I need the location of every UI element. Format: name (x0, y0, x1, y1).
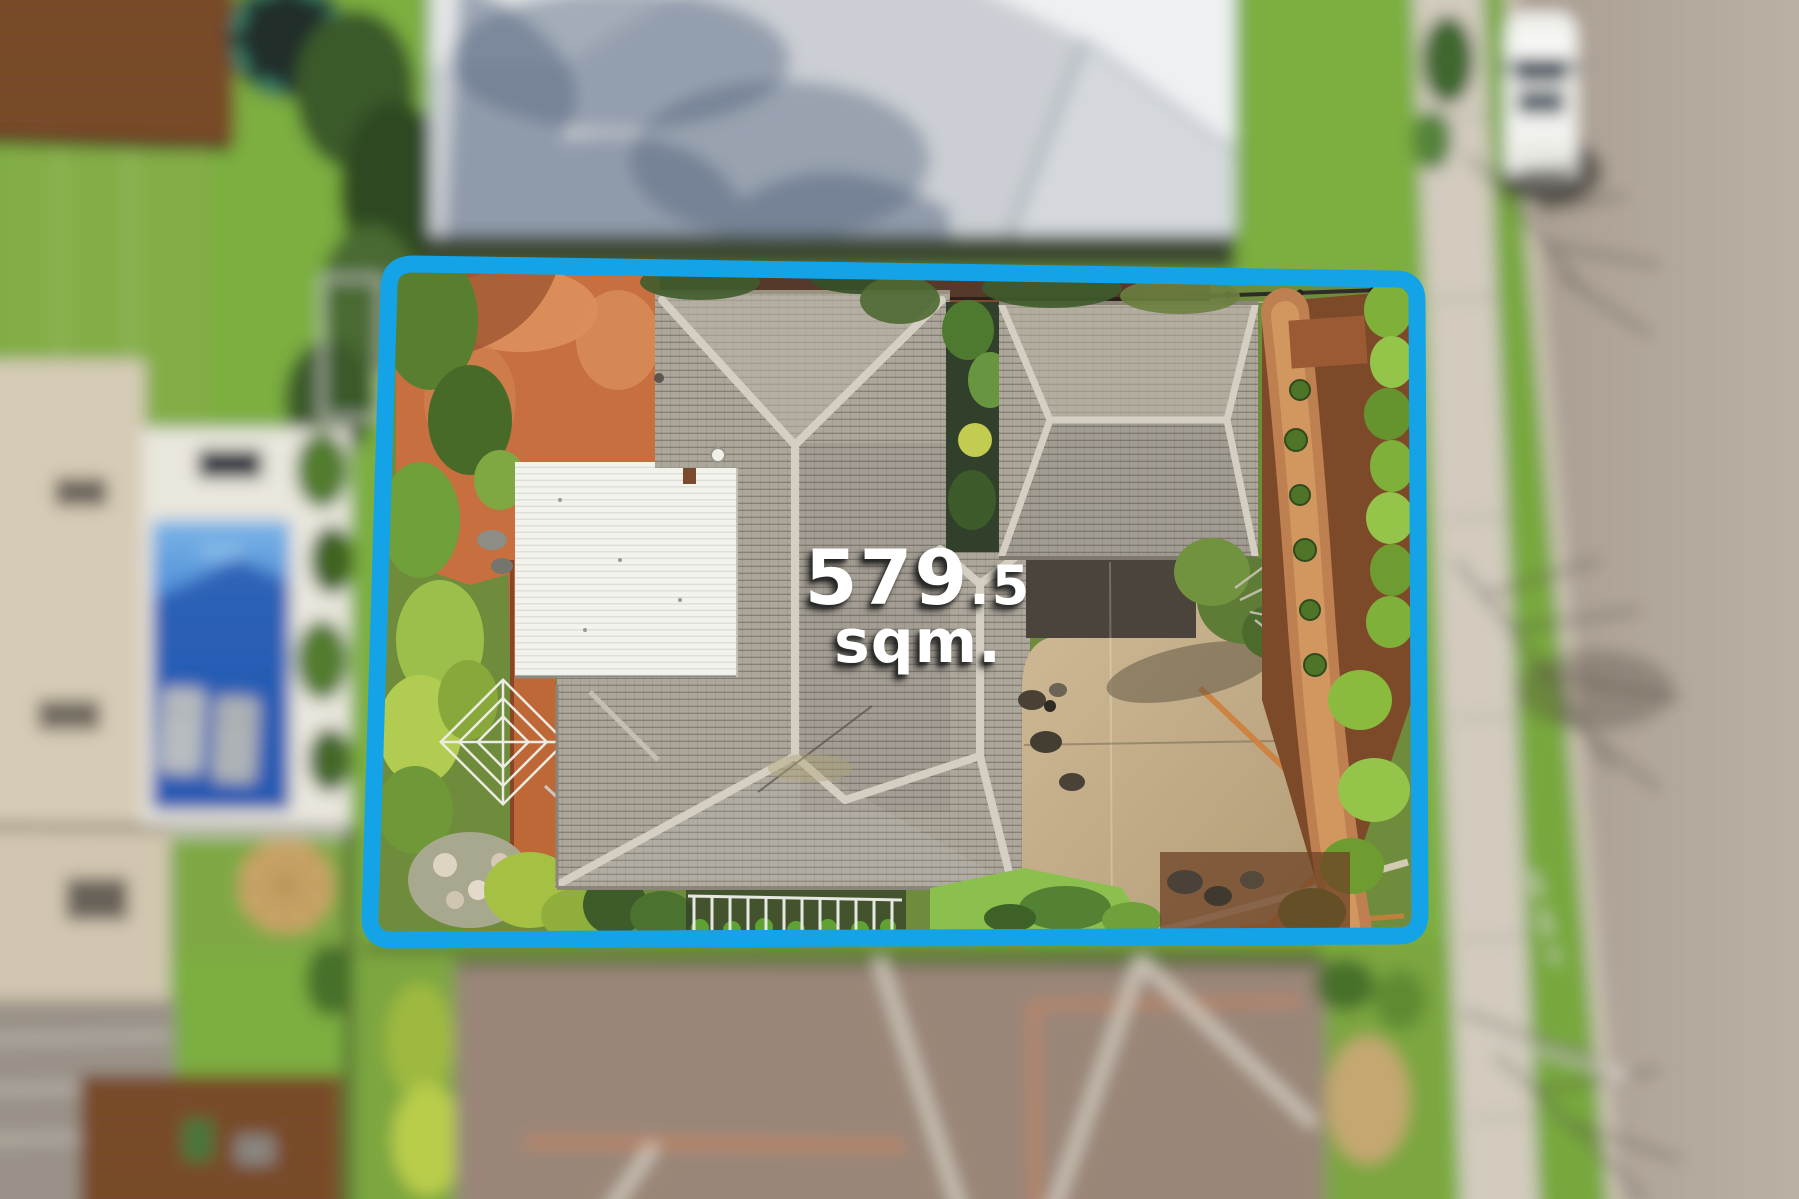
white-carport-roof (515, 462, 737, 677)
rust-patch (1288, 315, 1367, 368)
car-windshield (1512, 58, 1570, 82)
car-rear-window (1517, 90, 1565, 114)
aerial-scene (0, 0, 1799, 1199)
pool-cover-box (198, 450, 262, 478)
side-fence (348, 826, 350, 1199)
property-sharp-region (360, 250, 1430, 950)
neighbor-house-top (425, 0, 1235, 270)
garage-roof (999, 303, 1258, 558)
neighbor-house-bottom (355, 940, 1445, 1199)
ridge-orange (525, 1142, 905, 1146)
street-right (1412, 0, 1799, 1199)
aerial-photo-stage: 579.5 sqm. (0, 0, 1799, 1199)
roof-vent (711, 448, 725, 462)
